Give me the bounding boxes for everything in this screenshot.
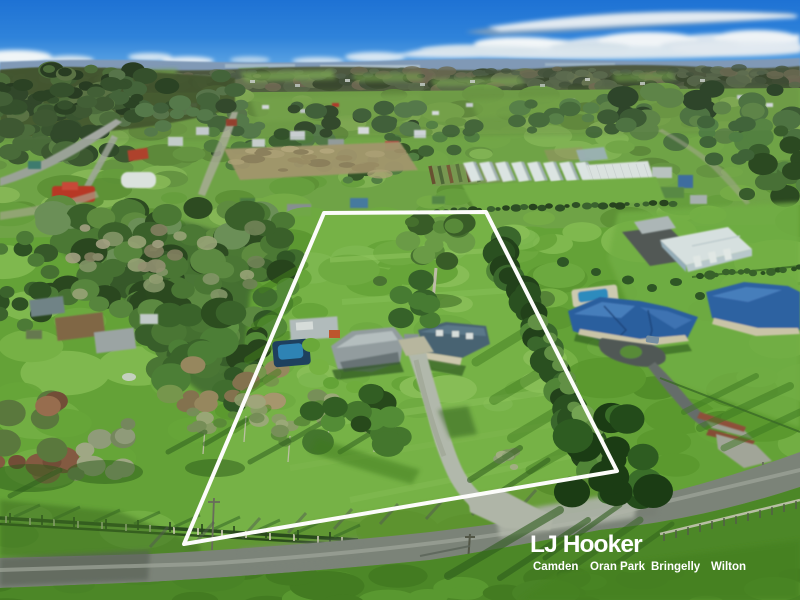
svg-text:Wilton: Wilton [711, 561, 746, 573]
svg-text:LJ Hooker: LJ Hooker [530, 531, 643, 558]
svg-text:Oran Park: Oran Park [590, 561, 646, 573]
svg-text:Camden: Camden [533, 561, 578, 573]
svg-text:Bringelly: Bringelly [651, 561, 701, 573]
